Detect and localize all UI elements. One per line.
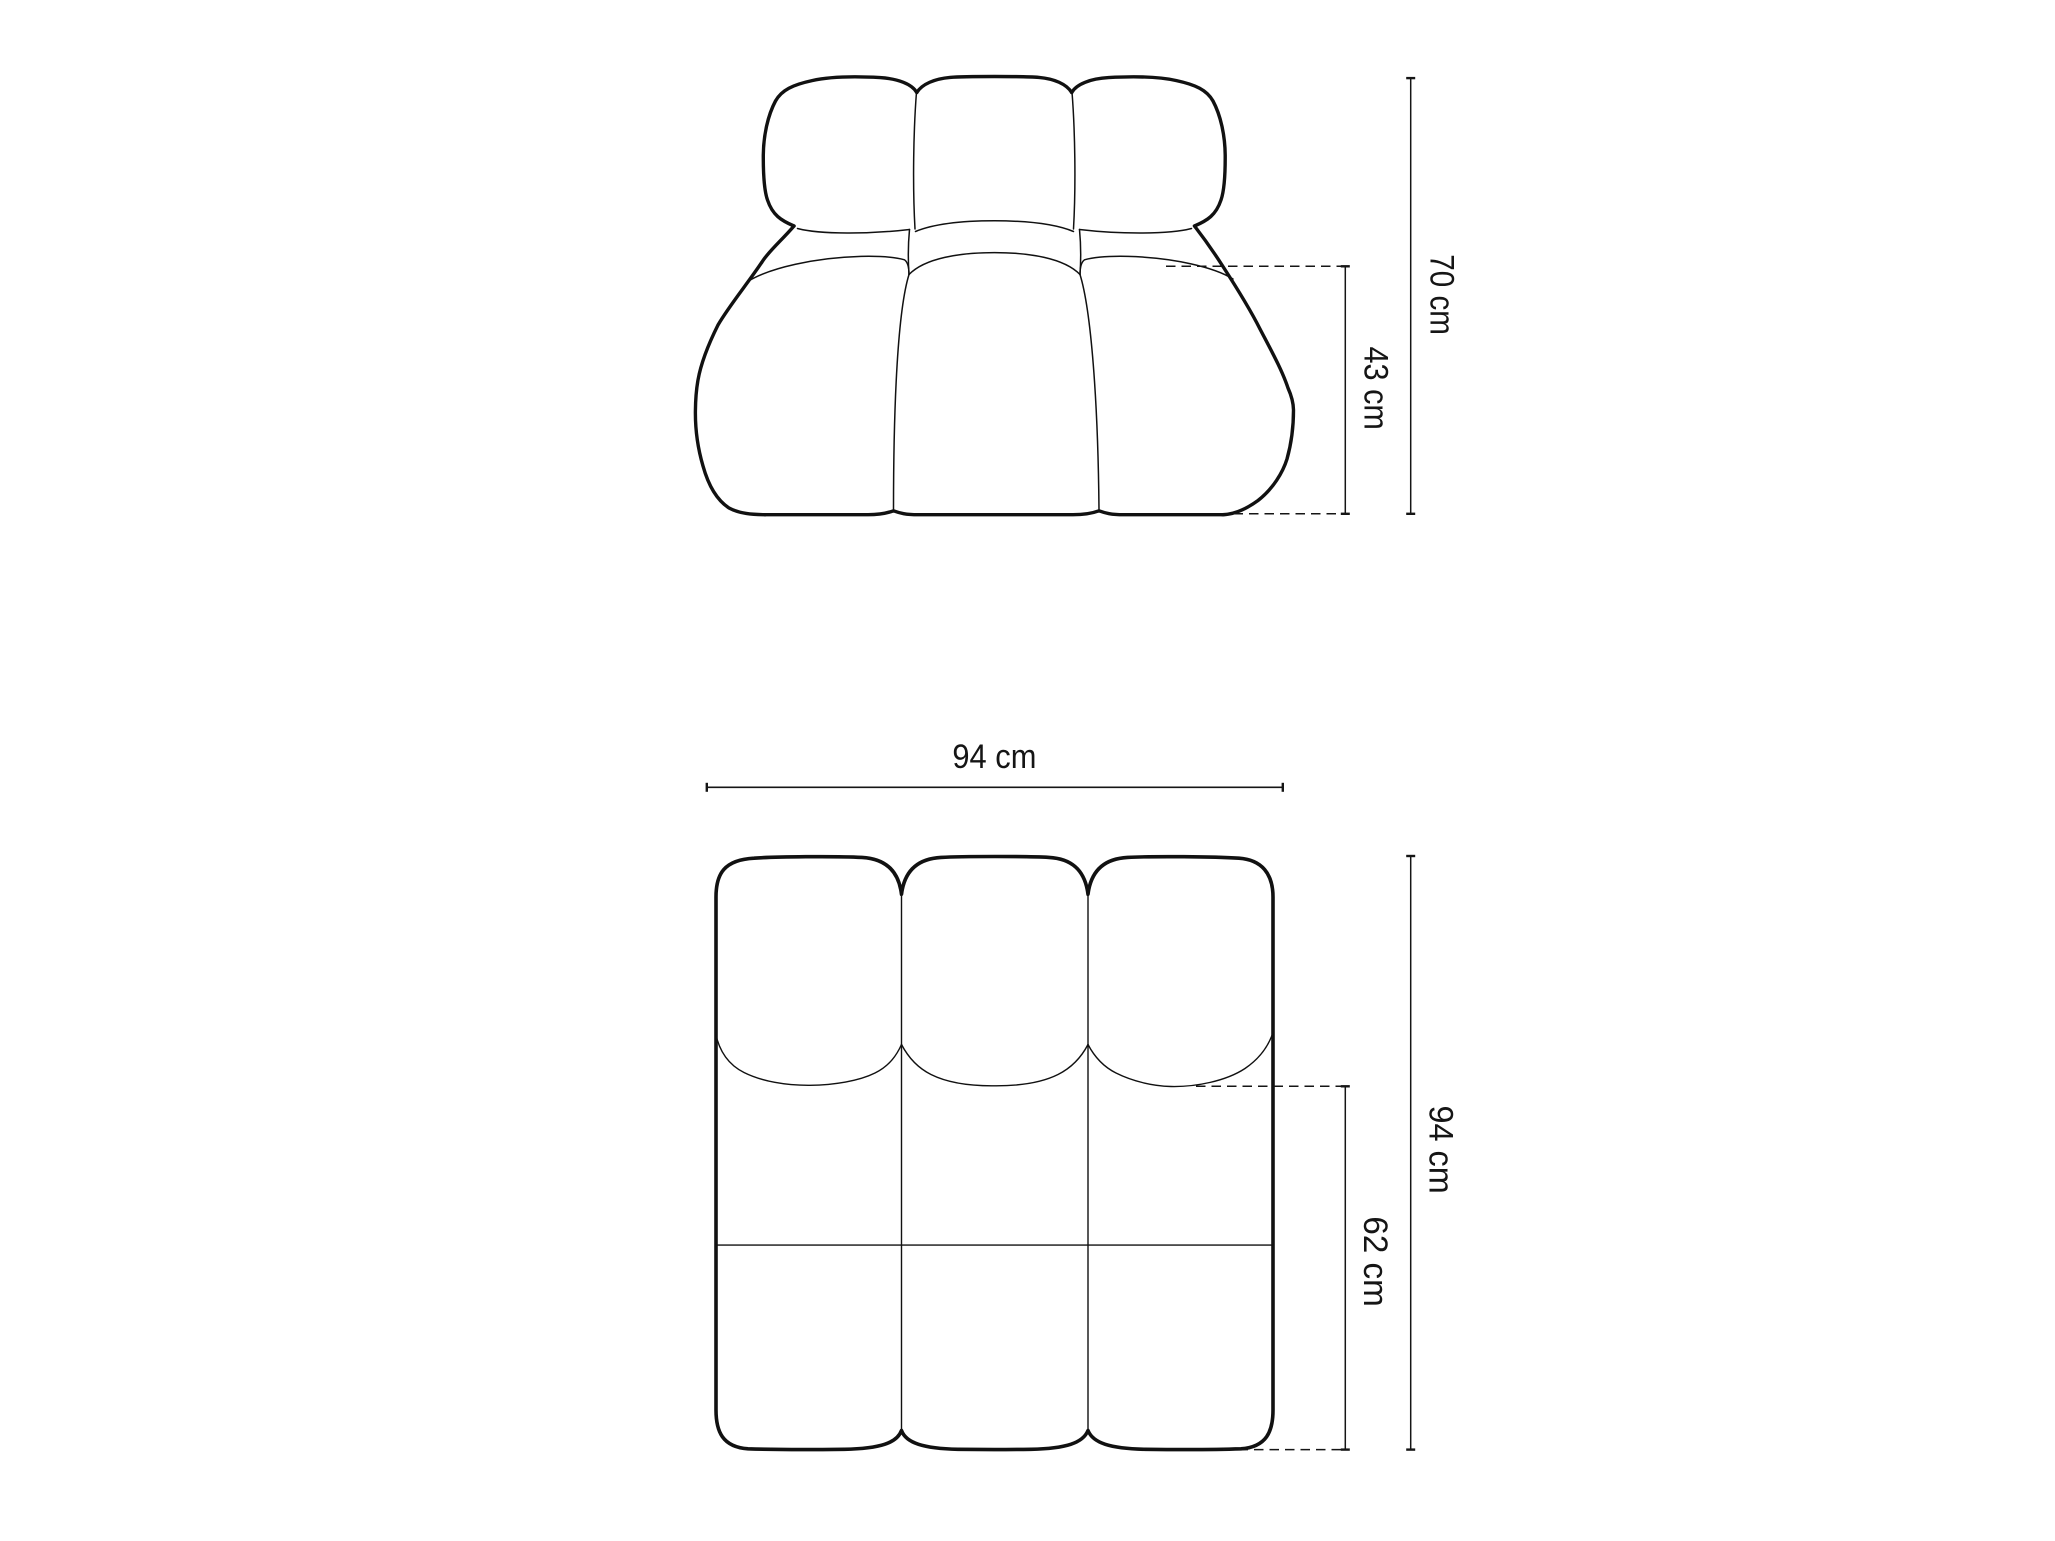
svg-text:43 cm: 43 cm <box>1357 347 1395 430</box>
svg-text:94 cm: 94 cm <box>1422 1106 1460 1194</box>
svg-text:62 cm: 62 cm <box>1356 1216 1394 1306</box>
svg-text:94 cm: 94 cm <box>952 738 1036 776</box>
svg-text:70 cm: 70 cm <box>1423 254 1461 335</box>
